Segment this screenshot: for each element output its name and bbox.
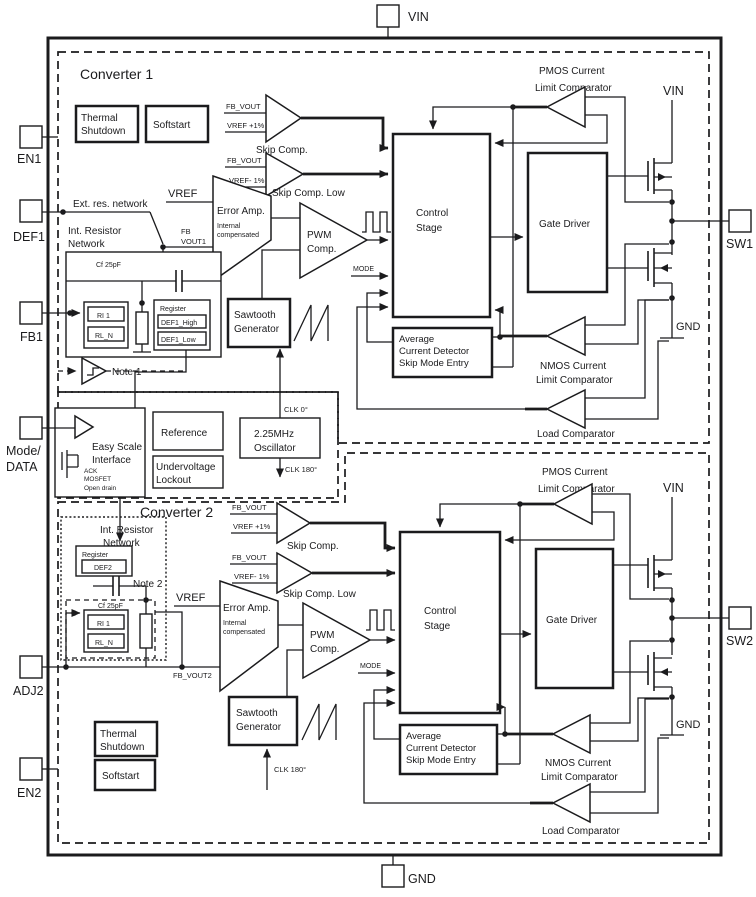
skip1-in1-label: FB_VOUT [226, 102, 261, 111]
en2-pin-box [20, 758, 42, 780]
skiplow2-in2-label: VREF- 1% [234, 572, 270, 581]
fb1-pin-box [20, 302, 42, 324]
load-comp-triangle-2 [553, 784, 590, 822]
saw2-to-pwm [287, 650, 303, 697]
error-amp-sub2a: Internal [223, 620, 247, 627]
note1-label: Note 1 [112, 367, 142, 378]
en1-pin-box [20, 126, 42, 148]
pmos2-arrow [658, 570, 666, 578]
vref-label-2: VREF [176, 592, 206, 604]
ri1-label-1: RI 1 [97, 313, 110, 320]
pwm-label-2a: PWM [310, 630, 334, 641]
gnd-rail-label-1: GND [676, 321, 701, 333]
ack-label: ACK [84, 468, 98, 475]
uvlo-block: Undervoltage Lockout [153, 456, 223, 488]
sawtooth-box-1 [228, 299, 290, 347]
fb-vout2-label: FB_VOUT2 [173, 671, 212, 680]
gate-driver-label-2: Gate Driver [546, 615, 598, 626]
conv1-gate-driver: Gate Driver [490, 153, 648, 292]
mode-pin-box [20, 417, 42, 439]
res2-symbol [140, 614, 152, 648]
conv2-control-stage: Control Stage [400, 532, 500, 713]
avg-label-2a: Average [406, 731, 441, 742]
mode-pin-label-1: Mode/ [6, 444, 41, 458]
error-amp-label-1: Error Amp. [217, 206, 265, 217]
reference-block: Reference [153, 412, 223, 450]
gnd-rail-label-2: GND [676, 719, 701, 731]
ext-res-label: Ext. res. network [73, 199, 148, 210]
conv2-int-resistor-network: Int. Resistor Network Register DEF2 Note… [61, 497, 182, 667]
uvlo-label-a: Undervoltage [156, 462, 216, 473]
error-amp-shape-2 [220, 581, 278, 691]
register1-easyscale-wire [135, 350, 186, 408]
skip-comp-low-label-1: Skip Comp. Low [272, 188, 346, 199]
pmos2-in2-wire [505, 512, 614, 540]
avg1-to-control [367, 293, 393, 342]
control-label-2a: Control [424, 606, 456, 617]
avg-label-2b: Current Detector [406, 743, 476, 754]
error-amp-label-2: Error Amp. [223, 603, 271, 614]
nmos-label-2b: Limit Comparator [541, 772, 618, 783]
skip-comp-low-triangle-2 [277, 553, 312, 593]
pmos1-to-control-top [433, 107, 514, 129]
skip1-out-wire [301, 118, 388, 148]
nmos-label-2a: NMOS Current [545, 758, 611, 769]
mode-label-1: MODE [353, 266, 374, 273]
en1-pin-label: EN1 [17, 152, 41, 166]
pmos2-to-control-top [440, 504, 521, 527]
pmos-label-2a: PMOS Current [542, 467, 608, 478]
thermal-label-1b: Shutdown [81, 126, 125, 137]
intres1-label-a: Int. Resistor [68, 226, 122, 237]
sawtooth-box-2 [229, 697, 297, 745]
open-drain-label: Open drain [84, 485, 117, 492]
conv2-thermal-shutdown-block: Thermal Shutdown [95, 722, 157, 756]
register1-label: Register [160, 306, 187, 313]
nmos-label-1a: NMOS Current [540, 361, 606, 372]
pin-en1: EN1 [17, 126, 58, 166]
gate-driver-label-1: Gate Driver [539, 219, 591, 230]
avg2-to-control [374, 690, 400, 739]
def1-pin-label: DEF1 [13, 230, 45, 244]
sawtooth-label-2b: Generator [236, 722, 282, 733]
avg-label-1b: Current Detector [399, 346, 469, 357]
skip1-in2-label: VREF +1% [227, 121, 265, 130]
avg-label-2c: Skip Mode Entry [406, 755, 476, 766]
conv2-softstart-block: Softstart [95, 760, 155, 790]
oscillator-label-b: Oscillator [254, 443, 296, 454]
conv1-thermal-shutdown-block: Thermal Shutdown [76, 106, 138, 142]
fb-label-1: FB [181, 227, 191, 236]
pin-fb1: FB1 [20, 302, 43, 344]
clk0-label: CLK 0° [284, 405, 308, 414]
load-comp-triangle-1 [547, 390, 585, 428]
skip2-in1-label: FB_VOUT [232, 503, 267, 512]
clk180-label-2: CLK 180° [274, 765, 306, 774]
sawtooth-wave-icon-2 [302, 704, 336, 740]
easy-scale-interface: Easy Scale Interface ACK MOSFET Open dra… [42, 408, 145, 497]
pmos-label-1a: PMOS Current [539, 66, 605, 77]
pmos1-in2-wire [495, 115, 607, 143]
oscillator-block: 2.25MHz Oscillator CLK 0° CLK 180° [240, 349, 320, 477]
sawtooth-label-2a: Sawtooth [236, 708, 278, 719]
nmos-label-1b: Limit Comparator [536, 375, 613, 386]
gnd-pin-label: GND [408, 872, 436, 886]
nmos-comp-triangle-1 [547, 317, 585, 355]
mode-label-2: MODE [360, 663, 381, 670]
control-label-2b: Stage [424, 621, 451, 632]
nmos1-arrow [660, 264, 668, 272]
oscillator-label-a: 2.25MHz [254, 429, 294, 440]
conv2-power-stage: VIN GND [648, 481, 729, 735]
clk180-label: CLK 180° [285, 465, 317, 474]
pwm-label-2b: Comp. [310, 644, 339, 655]
load-label-2: Load Comparator [542, 826, 620, 837]
fb1-pin-label: FB1 [20, 330, 43, 344]
fb2-tap-wire [155, 612, 182, 667]
note2-label: Note 2 [133, 579, 163, 590]
res1-symbol [136, 312, 148, 344]
pwm-label-1a: PWM [307, 230, 331, 241]
conv2-skip-comparator: FB_VOUT VREF +1% Skip Comp. [230, 503, 395, 552]
pin-en2: EN2 [17, 758, 58, 800]
pin-gnd-bottom: GND [382, 855, 436, 887]
error-amp-sub1a: Internal [217, 223, 241, 230]
error-amp-sub2b: compensated [223, 629, 265, 636]
sawtooth-wave-icon-1 [294, 305, 328, 341]
rln-label-1: RL_N [95, 333, 113, 340]
nmos-comp-triangle-2 [553, 715, 590, 753]
converter1-title: Converter 1 [80, 66, 153, 82]
cap2-label: Cf 25pF [98, 603, 123, 610]
cap2-symbol [113, 576, 119, 596]
saw1-to-pwm [262, 250, 300, 299]
conv1-softstart-block: Softstart [146, 106, 208, 142]
cap1-label: Cf 25pF [96, 262, 121, 269]
pin-sw1: SW1 [726, 210, 753, 251]
reference-label: Reference [161, 428, 208, 439]
nmos2-arrow [660, 668, 668, 676]
vout1-label-1: VOUT1 [181, 237, 206, 246]
skip2-in2-label: VREF +1% [233, 522, 271, 531]
avg-label-1c: Skip Mode Entry [399, 358, 469, 369]
vref-label-1: VREF [168, 188, 198, 200]
skip-comp-triangle-2 [277, 503, 310, 543]
diagram-canvas: Converter 1 Converter 2 VIN GND EN1 DEF1… [0, 0, 756, 892]
pin-vin-top: VIN [377, 5, 429, 38]
conv2-pwm-comparator: PWM Comp. [287, 603, 395, 697]
avg-label-1a: Average [399, 334, 434, 345]
control-label-1a: Control [416, 208, 448, 219]
skiplow1-in1-label: FB_VOUT [227, 156, 262, 165]
error-amp-sub1b: compensated [217, 232, 259, 239]
thermal-label-2b: Shutdown [100, 742, 144, 753]
thermal-label-2a: Thermal [100, 729, 137, 740]
def1low-label: DEF1_Low [161, 337, 197, 344]
vin-rail-label-1: VIN [663, 84, 684, 98]
conv2-gate-driver: Gate Driver [500, 549, 648, 688]
note1-schmitt-triangle [82, 358, 106, 384]
intres2-label-a: Int. Resistor [100, 525, 154, 536]
gnd-pin-box [382, 865, 404, 887]
skip-comp-low-label-2: Skip Comp. Low [283, 589, 357, 600]
sawtooth-label-1b: Generator [234, 324, 280, 335]
adj2-tap-wire [66, 613, 80, 667]
def1-pin-box [20, 200, 42, 222]
conv1-control-stage: Control Stage [393, 134, 490, 317]
mosfet-label: MOSFET [84, 476, 111, 483]
easy-scale-label-a: Easy Scale [92, 442, 142, 453]
sw2-pin-label: SW2 [726, 634, 753, 648]
rln-label-2: RL_N [95, 640, 113, 647]
conv1-int-resistor-network: Int. Resistor Network Cf 25pF RI 1 RL_N … [42, 226, 221, 408]
en2-pin-label: EN2 [17, 786, 41, 800]
mode-pin-label-2: DATA [6, 460, 38, 474]
nmos1-in2-wire [585, 300, 669, 344]
skip-comp-label-2: Skip Comp. [287, 541, 339, 552]
adj2-pin-box [20, 656, 42, 678]
uvlo-label-b: Lockout [156, 475, 191, 486]
vin-rail-label-2: VIN [663, 481, 684, 495]
sawtooth-label-1a: Sawtooth [234, 310, 276, 321]
adj2-pin-label: ADJ2 [13, 684, 44, 698]
sw2-pin-box [729, 607, 751, 629]
block-diagram: Converter 1 Converter 2 VIN GND EN1 DEF1… [0, 0, 756, 892]
skip-comp-label-1: Skip Comp. [256, 145, 308, 156]
sw1-pin-label: SW1 [726, 237, 753, 251]
square-wave-icon-1 [362, 212, 391, 232]
conv1-note1: Note 1 [58, 358, 186, 384]
def2-label: DEF2 [94, 565, 112, 572]
pmos1-arrow [658, 173, 666, 181]
easy-scale-label-b: Interface [92, 455, 131, 466]
square-wave-icon-2 [366, 610, 395, 630]
vin-pin-box [377, 5, 399, 27]
vin-pin-label: VIN [408, 10, 429, 24]
nmos1-to-control [495, 310, 500, 337]
pin-sw2: SW2 [726, 607, 753, 648]
control-label-1b: Stage [416, 223, 443, 234]
sw1-pin-box [729, 210, 751, 232]
pin-def1: DEF1 [13, 200, 45, 244]
ext-res-slant [150, 212, 163, 244]
conv1-skip-comparator: FB_VOUT VREF +1% Skip Comp. [224, 95, 388, 156]
skiplow2-in1-label: FB_VOUT [232, 553, 267, 562]
conv2-sawtooth-generator: Sawtooth Generator CLK 180° [229, 697, 336, 790]
softstart-label-2: Softstart [102, 771, 139, 782]
register2-label: Register [82, 552, 109, 559]
ri1-label-2: RI 1 [97, 621, 110, 628]
def1high-label: DEF1_High [161, 320, 197, 327]
pin-mode-data: Mode/ DATA [6, 417, 42, 474]
pin-adj2: ADJ2 [13, 656, 44, 698]
pwm-label-1b: Comp. [307, 244, 336, 255]
skip-comp-triangle-1 [266, 95, 301, 142]
conv1-sawtooth-generator: Sawtooth Generator [228, 299, 328, 347]
thermal-label-1a: Thermal [81, 113, 118, 124]
softstart-label-1: Softstart [153, 120, 190, 131]
intres1-label-b: Network [68, 239, 106, 250]
load-label-1: Load Comparator [537, 429, 615, 440]
